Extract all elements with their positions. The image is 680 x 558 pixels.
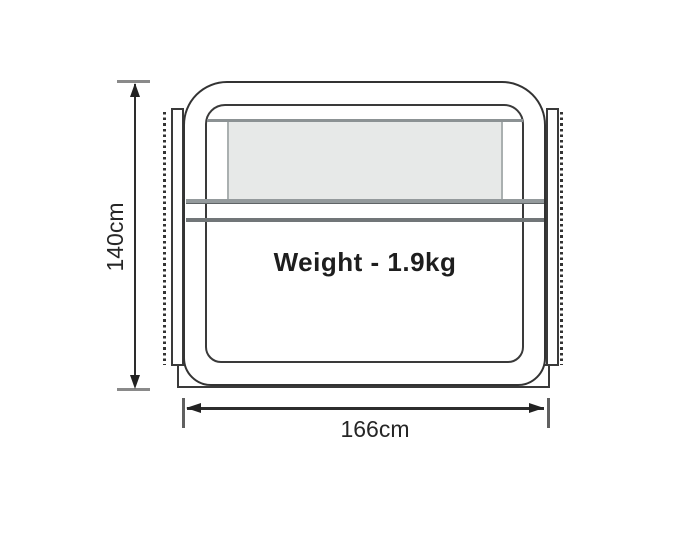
height-dim-label: 140cm — [102, 192, 128, 282]
lower-divider-rail — [186, 218, 544, 222]
arrow-left-icon — [186, 403, 201, 413]
arrow-up-icon — [130, 83, 140, 97]
window-panel — [227, 120, 503, 203]
beading-strip-right — [546, 108, 559, 366]
weight-label: Weight - 1.9kg — [205, 247, 525, 277]
window-bottom-rail — [186, 199, 544, 204]
beading-dots-left — [163, 112, 166, 365]
width-dim-line — [187, 407, 544, 410]
width-dim-tick-right — [547, 398, 550, 428]
arrow-down-icon — [130, 375, 140, 389]
width-dim-label: 166cm — [310, 416, 440, 442]
window-top-rail — [207, 119, 523, 122]
beading-dots-right — [560, 112, 563, 365]
height-dim-line — [134, 84, 137, 386]
arrow-right-icon — [529, 403, 544, 413]
panel-dimension-diagram: Weight - 1.9kg 140cm 166cm — [0, 0, 680, 558]
width-dim-tick-left — [182, 398, 185, 428]
